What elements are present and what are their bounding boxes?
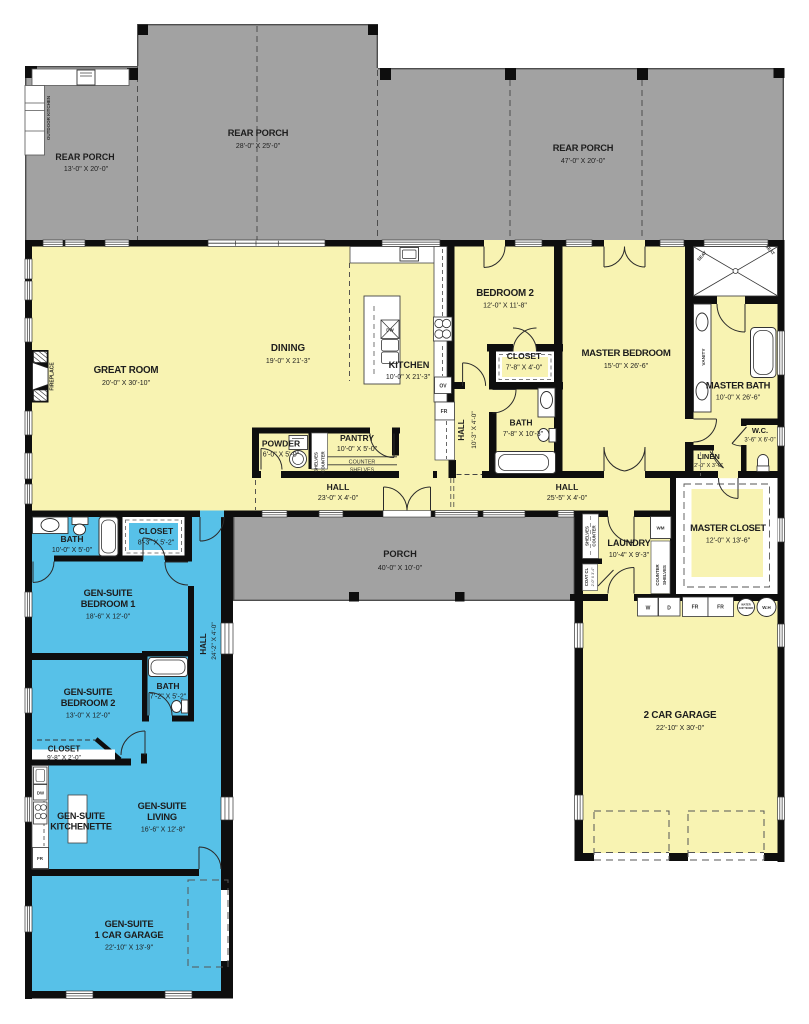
- svg-text:7'-2" X 5'-2": 7'-2" X 5'-2": [150, 694, 187, 701]
- svg-text:MASTER BATH: MASTER BATH: [706, 380, 771, 391]
- svg-text:16'-6" X 12'-8": 16'-6" X 12'-8": [141, 827, 186, 834]
- svg-text:GEN-SUITE: GEN-SUITE: [84, 588, 133, 598]
- svg-text:OV: OV: [439, 384, 447, 390]
- svg-text:LAUNDRY: LAUNDRY: [607, 538, 650, 548]
- svg-text:6'-0" X 5'-0": 6'-0" X 5'-0": [263, 452, 300, 459]
- svg-text:DW: DW: [37, 791, 45, 796]
- svg-text:13'-0" X 20'-0": 13'-0" X 20'-0": [64, 166, 109, 173]
- svg-text:W.C.: W.C.: [752, 426, 768, 435]
- svg-text:40'-0" X 10'-0": 40'-0" X 10'-0": [378, 565, 423, 572]
- svg-text:REAR PORCH: REAR PORCH: [228, 128, 289, 138]
- svg-text:GEN-SUITE: GEN-SUITE: [57, 811, 105, 821]
- svg-text:25'-5" X 4'-0": 25'-5" X 4'-0": [547, 495, 588, 502]
- svg-text:BEDROOM 1: BEDROOM 1: [81, 599, 136, 609]
- svg-text:24'-2" X 4'-0": 24'-2" X 4'-0": [211, 622, 218, 660]
- svg-text:7'-8" X 4'-0": 7'-8" X 4'-0": [506, 365, 543, 372]
- svg-text:HALL: HALL: [199, 633, 208, 654]
- svg-text:REAR PORCH: REAR PORCH: [553, 143, 614, 153]
- svg-text:KITCHENETTE: KITCHENETTE: [50, 822, 112, 832]
- svg-text:FR: FR: [717, 605, 724, 611]
- svg-text:22'-10" X 13'-9": 22'-10" X 13'-9": [105, 945, 154, 952]
- svg-text:28'-0" X 25'-0": 28'-0" X 25'-0": [236, 143, 281, 150]
- svg-text:VANITY: VANITY: [701, 348, 707, 366]
- svg-text:HALL: HALL: [556, 482, 579, 492]
- svg-text:9'-8" X 2'-0": 9'-8" X 2'-0": [47, 755, 82, 762]
- svg-text:COUNTER: COUNTER: [655, 563, 660, 585]
- svg-text:DW: DW: [386, 328, 394, 333]
- svg-text:CLOSET: CLOSET: [48, 745, 81, 754]
- svg-text:BEDROOM 2: BEDROOM 2: [476, 288, 534, 299]
- svg-text:GREAT ROOM: GREAT ROOM: [94, 365, 159, 376]
- svg-text:8'-3" X 5'-2": 8'-3" X 5'-2": [138, 540, 175, 547]
- svg-text:D: D: [667, 606, 671, 612]
- svg-text:FIREPLACE: FIREPLACE: [50, 362, 56, 391]
- svg-text:10'-0" X 5'-0": 10'-0" X 5'-0": [52, 547, 93, 554]
- svg-text:COUNTER: COUNTER: [592, 524, 597, 546]
- svg-text:FR: FR: [692, 605, 699, 611]
- svg-text:PORCH: PORCH: [383, 549, 417, 559]
- svg-text:BATH: BATH: [61, 534, 84, 544]
- svg-text:SHELVES: SHELVES: [585, 526, 590, 546]
- svg-text:12'-0" X 11'-8": 12'-0" X 11'-8": [483, 303, 527, 310]
- svg-text:CLOSET: CLOSET: [507, 351, 542, 361]
- svg-text:MASTER BEDROOM: MASTER BEDROOM: [581, 348, 670, 359]
- svg-text:W.H: W.H: [762, 605, 771, 610]
- svg-text:22'-10" X 30'-0": 22'-10" X 30'-0": [656, 725, 705, 732]
- svg-text:SHELVES: SHELVES: [350, 467, 375, 473]
- svg-text:HALL: HALL: [457, 419, 466, 440]
- svg-text:HALL: HALL: [327, 482, 350, 492]
- svg-text:SHELVES: SHELVES: [314, 452, 319, 472]
- svg-text:2'-0" X 3'-4": 2'-0" X 3'-4": [591, 567, 595, 586]
- svg-text:GEN-SUITE: GEN-SUITE: [105, 919, 154, 929]
- svg-text:10'-4" X 9'-3": 10'-4" X 9'-3": [609, 552, 650, 559]
- svg-text:47'-0" X 20'-0": 47'-0" X 20'-0": [561, 158, 606, 165]
- svg-text:SOFTENER: SOFTENER: [739, 606, 754, 610]
- svg-text:FR: FR: [441, 409, 448, 415]
- svg-text:10'-0" X 26'-6": 10'-0" X 26'-6": [716, 395, 761, 402]
- svg-text:13'-0" X 12'-0": 13'-0" X 12'-0": [66, 713, 111, 720]
- svg-text:WM: WM: [657, 526, 665, 531]
- svg-text:GEN-SUITE: GEN-SUITE: [138, 801, 187, 811]
- svg-text:COUNTER: COUNTER: [321, 450, 326, 472]
- svg-text:19'-0" X 21'-3": 19'-0" X 21'-3": [266, 358, 311, 365]
- svg-text:10'-0" X 21'-3": 10'-0" X 21'-3": [386, 374, 431, 381]
- svg-text:12'-0" X 13'-6": 12'-0" X 13'-6": [706, 538, 751, 545]
- svg-text:2'-0" X 3'-0": 2'-0" X 3'-0": [694, 463, 723, 469]
- svg-text:POWDER: POWDER: [262, 439, 300, 449]
- svg-text:REAR PORCH: REAR PORCH: [55, 152, 114, 162]
- svg-text:GEN-SUITE: GEN-SUITE: [64, 687, 113, 697]
- svg-text:OUTDOOR KITCHEN: OUTDOOR KITCHEN: [46, 96, 51, 140]
- svg-text:BATH: BATH: [510, 418, 533, 428]
- svg-text:BEDROOM 2: BEDROOM 2: [61, 698, 116, 708]
- svg-text:1 CAR GARAGE: 1 CAR GARAGE: [95, 930, 164, 940]
- svg-text:23'-0" X 4'-0": 23'-0" X 4'-0": [318, 495, 359, 502]
- svg-text:BATH: BATH: [157, 681, 180, 691]
- svg-text:20'-0" X 30'-10": 20'-0" X 30'-10": [102, 380, 151, 387]
- svg-text:MASTER CLOSET: MASTER CLOSET: [690, 523, 766, 533]
- svg-text:2 CAR GARAGE: 2 CAR GARAGE: [644, 710, 717, 721]
- svg-text:DINING: DINING: [271, 343, 306, 354]
- svg-text:18'-6" X 12'-0": 18'-6" X 12'-0": [86, 614, 131, 621]
- svg-text:3'-6" X 6'-0": 3'-6" X 6'-0": [744, 438, 775, 444]
- svg-text:WATER: WATER: [741, 603, 751, 607]
- svg-text:KITCHEN: KITCHEN: [389, 360, 430, 370]
- svg-text:CLOSET: CLOSET: [139, 526, 174, 536]
- svg-text:15'-0" X 26'-6": 15'-0" X 26'-6": [604, 363, 649, 370]
- svg-text:W: W: [646, 606, 651, 612]
- svg-text:10'-3" X 4'-0": 10'-3" X 4'-0": [471, 411, 478, 449]
- svg-text:LINEN: LINEN: [697, 452, 720, 461]
- svg-text:FR: FR: [37, 856, 44, 861]
- svg-text:10'-0" X 5'-0": 10'-0" X 5'-0": [337, 446, 378, 453]
- svg-text:7'-8" X 10'-3": 7'-8" X 10'-3": [503, 431, 544, 438]
- svg-text:LIVING: LIVING: [147, 812, 177, 822]
- svg-text:PANTRY: PANTRY: [340, 433, 374, 443]
- svg-text:SHELVES: SHELVES: [662, 565, 667, 585]
- svg-text:COAT CL: COAT CL: [584, 567, 589, 586]
